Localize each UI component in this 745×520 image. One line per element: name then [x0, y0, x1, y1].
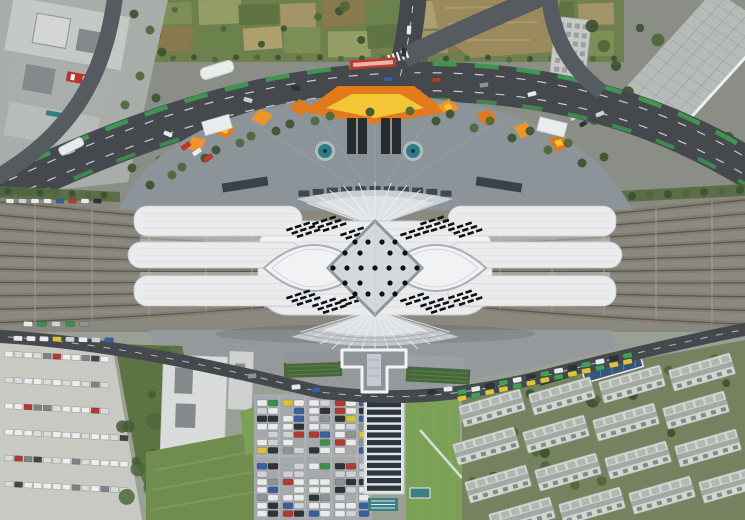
tree: [526, 127, 535, 136]
bus: [62, 458, 70, 464]
farm-plot: [284, 27, 321, 54]
roof-dot: [358, 265, 363, 270]
roof-dot: [414, 265, 419, 270]
tree: [600, 153, 609, 162]
tree: [128, 164, 137, 173]
bus: [43, 431, 51, 437]
car: [320, 416, 330, 422]
roof-dot: [402, 280, 407, 285]
bus: [5, 403, 13, 409]
tree: [220, 26, 226, 32]
solar-panel-row: [367, 410, 401, 415]
car: [283, 495, 293, 501]
bus: [53, 484, 61, 490]
tree: [597, 476, 607, 486]
car: [309, 503, 319, 509]
bus: [34, 457, 42, 463]
car: [359, 495, 369, 501]
roof-dot: [357, 280, 362, 285]
car: [283, 440, 293, 446]
west-wing-roof: [286, 351, 338, 364]
tree: [236, 139, 245, 148]
bus: [110, 461, 118, 467]
car: [283, 432, 293, 438]
window: [582, 33, 587, 38]
scrub-clump: [146, 413, 163, 430]
car: [283, 471, 293, 477]
bus: [43, 379, 51, 385]
car: [13, 336, 22, 341]
tree: [590, 56, 596, 62]
tree: [212, 57, 218, 63]
tree: [646, 191, 654, 199]
tree: [191, 54, 197, 60]
bus: [120, 461, 128, 467]
car: [311, 387, 320, 393]
bus: [34, 483, 42, 489]
roof-dot: [344, 265, 349, 270]
bus: [53, 354, 61, 360]
bus: [53, 406, 61, 412]
solar-panel-row: [367, 486, 401, 491]
tree: [578, 159, 587, 168]
bus: [72, 433, 80, 439]
car: [257, 400, 267, 406]
tree: [544, 146, 553, 155]
car: [268, 440, 278, 446]
bus: [14, 378, 22, 384]
car: [294, 511, 304, 517]
car: [320, 424, 330, 430]
bus: [81, 485, 89, 491]
courtyard: [175, 403, 196, 428]
bus: [14, 456, 22, 462]
car: [37, 321, 46, 326]
bus: [120, 435, 128, 441]
car: [65, 321, 74, 326]
bus: [72, 355, 80, 361]
tree: [275, 55, 281, 61]
pool-center: [323, 149, 327, 153]
car: [443, 386, 452, 392]
window: [580, 51, 585, 56]
car: [43, 199, 51, 204]
car: [51, 321, 60, 326]
car: [309, 432, 319, 438]
roof-dot: [392, 239, 397, 244]
tree: [564, 139, 573, 148]
car: [52, 336, 61, 341]
bus: [14, 404, 22, 410]
tree: [664, 190, 672, 198]
car: [268, 495, 278, 501]
farm-plot: [328, 31, 371, 58]
tree: [136, 72, 145, 81]
car: [294, 463, 304, 469]
roof-dot: [387, 280, 392, 285]
teal-pool: [410, 488, 430, 498]
scrub-clump: [148, 391, 156, 399]
car: [309, 424, 319, 430]
bus: [72, 381, 80, 387]
car: [294, 495, 304, 501]
car: [78, 337, 87, 342]
bus: [62, 406, 70, 412]
tree: [446, 110, 455, 119]
bus: [72, 485, 80, 491]
tree: [636, 24, 644, 32]
tree: [121, 101, 130, 110]
bus: [14, 482, 22, 488]
car: [257, 479, 267, 485]
car: [309, 408, 319, 414]
roof-dot: [352, 291, 357, 296]
facade-window: [313, 189, 324, 195]
car: [283, 400, 293, 406]
tree: [506, 57, 512, 63]
car: [320, 503, 330, 509]
tree: [247, 132, 256, 141]
tree: [586, 20, 599, 33]
solar-panel-row: [367, 425, 401, 430]
roof-dot: [357, 250, 362, 255]
tree: [311, 117, 320, 126]
tree: [168, 171, 177, 180]
tree: [53, 190, 60, 197]
tree: [326, 112, 335, 121]
car: [294, 447, 304, 453]
car: [268, 400, 278, 406]
car: [294, 400, 304, 406]
car: [257, 495, 267, 501]
tree: [470, 124, 479, 133]
car: [257, 487, 267, 493]
car: [320, 463, 330, 469]
roof-dot: [379, 291, 384, 296]
facade-window: [299, 191, 310, 197]
roof-dot: [342, 280, 347, 285]
car: [346, 503, 356, 509]
tree: [254, 54, 260, 60]
tree: [146, 26, 155, 35]
bus: [72, 407, 80, 413]
bus: [43, 405, 51, 411]
tree: [652, 34, 665, 47]
car: [335, 416, 345, 422]
bus: [81, 459, 89, 465]
entrance-skylight: [367, 354, 381, 386]
tree: [130, 10, 139, 19]
car: [320, 487, 330, 493]
car: [294, 432, 304, 438]
bus: [43, 457, 51, 463]
roof-dot: [330, 265, 335, 270]
bus: [91, 408, 99, 414]
car: [268, 487, 278, 493]
facade-window: [441, 191, 452, 197]
solar-panel-row: [367, 448, 401, 453]
tree: [286, 120, 295, 129]
car: [309, 495, 319, 501]
car: [320, 447, 330, 453]
car: [335, 495, 345, 501]
lattice-gap: [448, 236, 610, 242]
tree: [366, 108, 375, 117]
car: [335, 479, 345, 485]
car: [294, 479, 304, 485]
car: [346, 511, 356, 517]
tree: [101, 192, 108, 199]
solar-panel-row: [367, 417, 401, 422]
tree: [69, 190, 76, 197]
car: [346, 463, 356, 469]
tree: [722, 379, 730, 387]
car: [346, 424, 356, 430]
bus: [62, 354, 70, 360]
tree: [508, 134, 517, 143]
car: [335, 511, 345, 517]
tree: [357, 36, 365, 44]
roof-dot: [372, 265, 377, 270]
roof-dot: [387, 250, 392, 255]
car: [359, 503, 369, 509]
bus: [53, 458, 61, 464]
bus: [43, 483, 51, 489]
car: [283, 503, 293, 509]
bus: [101, 356, 109, 362]
bus: [24, 430, 32, 436]
bus: [14, 352, 22, 358]
tree: [628, 192, 636, 200]
car: [79, 321, 88, 326]
car: [56, 199, 64, 204]
tree: [296, 55, 302, 61]
window: [574, 23, 579, 28]
window: [581, 42, 586, 47]
roof-dot: [402, 250, 407, 255]
bus: [24, 378, 32, 384]
tree: [314, 13, 322, 21]
car: [309, 400, 319, 406]
car: [309, 447, 319, 453]
bus: [110, 487, 118, 493]
car: [257, 503, 267, 509]
car: [257, 408, 267, 414]
bus: [81, 433, 89, 439]
car: [309, 479, 319, 485]
roof-dot: [379, 239, 384, 244]
car: [320, 495, 330, 501]
bus: [91, 356, 99, 362]
tree: [170, 55, 176, 61]
car: [335, 424, 345, 430]
car: [257, 424, 267, 430]
bus: [81, 381, 89, 387]
tree: [527, 56, 533, 62]
bus: [81, 355, 89, 361]
tree: [443, 56, 449, 62]
car: [268, 463, 278, 469]
tree: [338, 56, 344, 62]
car: [268, 511, 278, 517]
car: [346, 408, 356, 414]
car: [93, 199, 101, 204]
bus: [5, 481, 13, 487]
car: [283, 511, 293, 517]
bus: [91, 460, 99, 466]
car: [268, 432, 278, 438]
bus: [101, 486, 109, 492]
tree: [152, 94, 161, 103]
car: [309, 487, 319, 493]
solar-panel-row: [367, 455, 401, 460]
car: [309, 463, 319, 469]
car: [294, 424, 304, 430]
roof-dot: [365, 239, 370, 244]
car: [431, 77, 440, 82]
car: [346, 479, 356, 485]
tree: [21, 188, 28, 195]
car: [6, 199, 14, 204]
car: [257, 416, 267, 422]
bus: [101, 408, 109, 414]
bus: [101, 382, 109, 388]
car: [335, 503, 345, 509]
roof-dot: [392, 291, 397, 296]
farm-plot: [238, 3, 279, 25]
window: [555, 57, 560, 62]
tree: [158, 48, 167, 57]
tree: [172, 7, 178, 13]
car: [268, 447, 278, 453]
car: [283, 424, 293, 430]
bus: [91, 382, 99, 388]
car: [294, 408, 304, 414]
car: [283, 447, 293, 453]
car: [268, 503, 278, 509]
tree: [339, 1, 350, 12]
bus: [5, 377, 13, 383]
car: [309, 416, 319, 422]
car: [335, 487, 345, 493]
tree: [212, 146, 221, 155]
car: [39, 336, 48, 341]
tree: [178, 163, 187, 172]
tree: [667, 429, 675, 437]
tree: [146, 181, 155, 190]
window: [573, 41, 578, 46]
tower-roof: [32, 13, 71, 48]
tree: [317, 54, 323, 60]
plaza-pool: [403, 141, 423, 161]
car: [320, 432, 330, 438]
tree: [682, 189, 690, 197]
window: [567, 23, 572, 28]
car: [26, 336, 35, 341]
car: [283, 416, 293, 422]
car: [91, 337, 100, 342]
facade-window: [426, 189, 437, 195]
car: [81, 199, 89, 204]
car: [309, 511, 319, 517]
bus: [91, 486, 99, 492]
window: [562, 67, 567, 72]
car: [346, 440, 356, 446]
solar-panel-row: [367, 440, 401, 445]
car: [320, 511, 330, 517]
car: [346, 487, 356, 493]
tree: [486, 117, 495, 126]
farm-plot: [198, 0, 242, 25]
bus: [62, 432, 70, 438]
bus: [110, 435, 118, 441]
bus: [24, 456, 32, 462]
bus: [24, 352, 32, 358]
car: [268, 424, 278, 430]
tree: [700, 188, 708, 196]
car: [257, 511, 267, 517]
roof-dot: [342, 250, 347, 255]
roof-dot: [386, 265, 391, 270]
car: [401, 47, 407, 57]
car: [294, 416, 304, 422]
car: [335, 432, 345, 438]
bus: [34, 353, 42, 359]
tree: [5, 188, 12, 195]
car: [257, 471, 267, 477]
scrub-clump: [119, 489, 135, 505]
bus: [53, 380, 61, 386]
tree: [611, 55, 617, 61]
car: [406, 25, 411, 34]
aerial-photo-canvas: [0, 0, 745, 520]
escalator-kiosk: [381, 118, 390, 154]
car: [247, 373, 256, 379]
tree: [718, 187, 726, 195]
car: [257, 463, 267, 469]
tree: [736, 186, 744, 194]
car: [68, 199, 76, 204]
pool-center: [411, 149, 415, 153]
car: [335, 447, 345, 453]
tree: [85, 191, 92, 198]
bus: [72, 459, 80, 465]
car: [346, 471, 356, 477]
bus: [62, 380, 70, 386]
tree: [485, 54, 491, 60]
courtyard: [174, 367, 193, 394]
bus: [24, 482, 32, 488]
car: [31, 199, 39, 204]
escalator-kiosk: [358, 118, 367, 154]
car: [384, 77, 393, 82]
car: [320, 440, 330, 446]
tree: [406, 107, 415, 116]
car: [335, 471, 345, 477]
car: [294, 471, 304, 477]
car: [268, 479, 278, 485]
scrub-clump: [116, 420, 128, 432]
bus: [81, 407, 89, 413]
car: [104, 338, 113, 343]
solar-panel-row: [367, 463, 401, 468]
solar-panel-row: [367, 470, 401, 475]
tree: [611, 61, 621, 71]
courtyard: [22, 64, 56, 95]
tree: [464, 55, 470, 61]
car: [268, 416, 278, 422]
car: [23, 321, 32, 326]
